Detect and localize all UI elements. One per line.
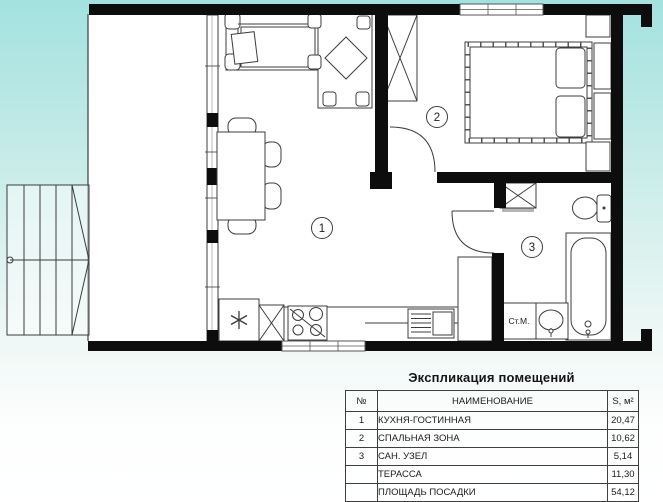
burner (310, 308, 323, 321)
washing-machine: Ст.М. (502, 303, 536, 339)
explication-title: Экспликация помещений (345, 370, 638, 385)
nightstand (594, 43, 611, 89)
row-area: 54,12 (608, 484, 639, 502)
wall-bathroom-left-lower (492, 253, 504, 341)
room-number-2: 2 (434, 112, 440, 124)
room-label-3: 3 (522, 237, 543, 258)
row-name: ТЕРАССА (378, 466, 608, 484)
row-num: 1 (346, 412, 378, 430)
header-area: S, м² (608, 391, 639, 412)
explication-table: № НАИМЕНОВАНИЕ S, м² 1 КУХНЯ-ГОСТИННАЯ 2… (345, 390, 639, 502)
row-area: 20,47 (608, 412, 639, 430)
corner-shelf (586, 142, 610, 171)
wall-partition-bedroom (375, 15, 388, 172)
burner (293, 325, 303, 335)
sink-basin (433, 312, 452, 335)
stairs (7, 185, 89, 335)
wall-bottom-end-stub (641, 329, 652, 341)
bathtub-faucet (586, 330, 590, 334)
pillow (556, 96, 585, 137)
row-num (346, 484, 378, 502)
header-name: НАИМЕНОВАНИЕ (378, 391, 608, 412)
room-label-1: 1 (312, 218, 333, 239)
row-area: 5,14 (608, 448, 639, 466)
sofa-pillow (231, 32, 257, 65)
floor-plan: Ст.М. (0, 0, 663, 368)
sofa-foot (323, 92, 336, 106)
bathtub-drain (585, 321, 591, 327)
sink-faucet (549, 329, 553, 333)
wall-top-end-stub (641, 15, 652, 27)
row-name: САН. УЗЕЛ (378, 448, 608, 466)
dining-table (217, 132, 265, 220)
kitchen-sink (408, 309, 454, 338)
stove (288, 306, 327, 340)
wall-bathroom-top (437, 172, 623, 183)
corner-shelf (586, 15, 610, 37)
table-row: 3 САН. УЗЕЛ 5,14 (346, 448, 639, 466)
row-num (346, 466, 378, 484)
table-header-row: № НАИМЕНОВАНИЕ S, м² (346, 391, 639, 412)
corner-counter (458, 257, 492, 341)
bathtub (566, 233, 611, 340)
bathroom-sink (536, 303, 568, 339)
window-top (460, 4, 543, 15)
sofa-foot (225, 13, 240, 29)
wall-bathroom-left-upper (494, 183, 506, 208)
washing-machine-label: Ст.М. (509, 316, 530, 326)
wall-bottom (88, 341, 652, 351)
header-num: № (346, 391, 378, 412)
sofa-foot (308, 55, 321, 69)
table-row: 1 КУХНЯ-ГОСТИННАЯ 20,47 (346, 412, 639, 430)
row-name: СПАЛЬНАЯ ЗОНА (378, 430, 608, 448)
cabinet-crossed (259, 305, 284, 341)
double-bed (465, 42, 592, 143)
wall-top (89, 4, 652, 15)
wardrobe (383, 15, 417, 101)
table-row: 2 СПАЛЬНАЯ ЗОНА 10,62 (346, 430, 639, 448)
nightstand (594, 93, 611, 139)
table-row: ПЛОЩАДЬ ПОСАДКИ 54,12 (346, 484, 639, 502)
row-name: ПЛОЩАДЬ ПОСАДКИ (378, 484, 608, 502)
pillow (556, 48, 585, 88)
row-num: 3 (346, 448, 378, 466)
wall-partition-stub (370, 172, 392, 189)
row-name: КУХНЯ-ГОСТИННАЯ (378, 412, 608, 430)
table-row: ТЕРАССА 11,30 (346, 466, 639, 484)
row-area: 11,30 (608, 466, 639, 484)
room-number-1: 1 (319, 223, 325, 235)
floorplan-page: { "plan": { "rooms": [ {"number": "1"}, … (0, 0, 663, 502)
sofa-foot (356, 92, 369, 106)
sofa-foot (308, 14, 321, 28)
sofa-foot (357, 16, 370, 29)
room-number-3: 3 (529, 242, 535, 254)
row-area: 10,62 (608, 430, 639, 448)
row-num: 2 (346, 430, 378, 448)
room-label-2: 2 (427, 107, 448, 128)
window-bottom (282, 341, 365, 351)
